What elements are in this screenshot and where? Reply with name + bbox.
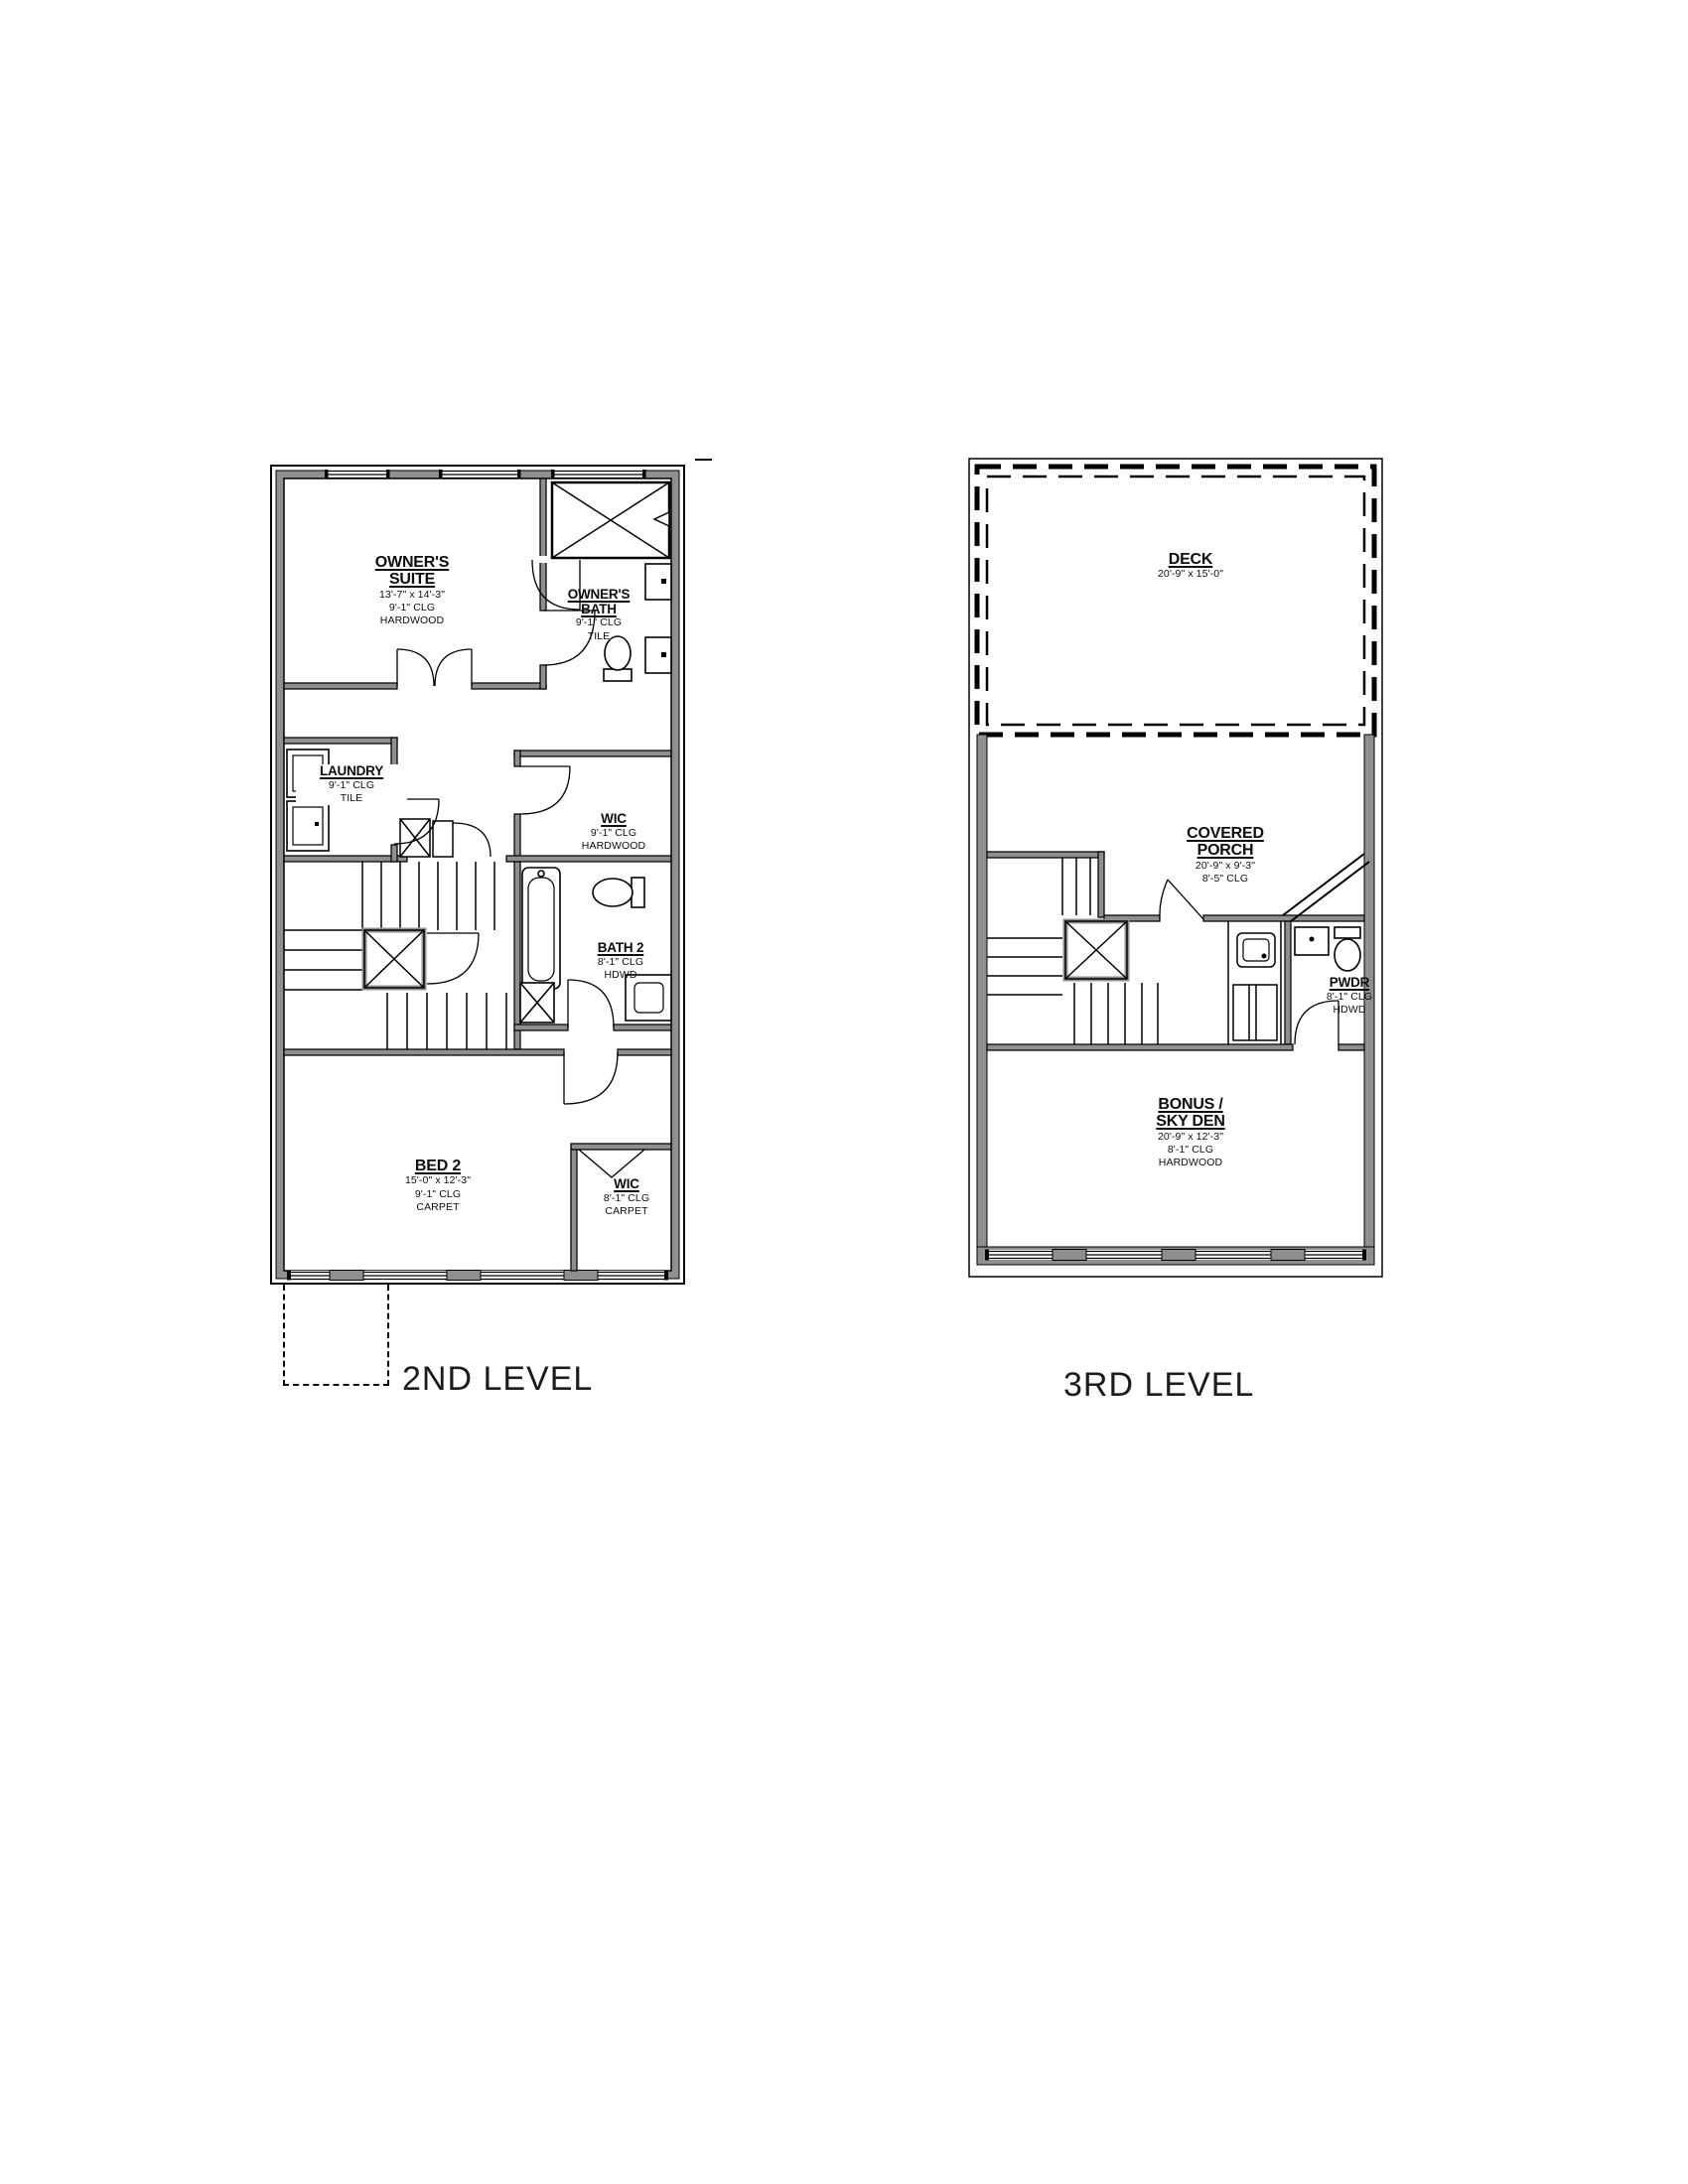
windows-bottom — [985, 1250, 1366, 1261]
label-2nd-level: 2ND LEVEL — [402, 1362, 593, 1396]
room-label-laundry: LAUNDRY 9'-1" CLG TILE — [296, 764, 407, 805]
room-name: OWNER'S SUITE — [362, 554, 462, 589]
room-ceiling: 9'-1" CLG — [296, 779, 407, 792]
room-label-pwdr: PWDR 8'-1" CLG HDWD — [1305, 976, 1394, 1017]
windows-top — [325, 470, 646, 478]
room-name: PORCH — [1166, 842, 1285, 859]
room-ceiling: 9'-1" CLG — [363, 1188, 512, 1201]
closet-chase-box — [400, 819, 453, 857]
stair-chase-box — [364, 930, 424, 988]
room-dims: 13'-7" x 14'-3" — [362, 589, 462, 602]
room-ceiling: 8'-5" CLG — [1166, 873, 1285, 886]
room-name: WIC — [572, 1177, 681, 1192]
room-label-covered-porch: COVERED PORCH 20'-9" x 9'-3" 8'-5" CLG — [1166, 825, 1285, 886]
room-dims: 15'-0" x 12'-3" — [363, 1174, 512, 1187]
room-floor: CARPET — [572, 1205, 681, 1218]
cutout-outline — [283, 1285, 389, 1386]
room-name: DECK — [1111, 551, 1270, 568]
room-label-wic-upper: WIC 9'-1" CLG HARDWOOD — [554, 812, 673, 853]
toilet-tank — [632, 878, 644, 907]
windows-bottom — [287, 1271, 668, 1281]
label-3rd-level: 3RD LEVEL — [1063, 1368, 1254, 1402]
shower — [552, 482, 669, 558]
room-label-bath-2: BATH 2 8'-1" CLG HDWD — [571, 941, 670, 982]
room-name: SKY DEN — [1111, 1113, 1270, 1130]
toilet-tank — [1335, 927, 1360, 938]
room-floor: HARDWOOD — [1111, 1157, 1270, 1169]
room-floor: TILE — [296, 792, 407, 805]
room-ceiling: 9'-1" CLG — [554, 616, 643, 629]
room-name: BED 2 — [363, 1158, 512, 1174]
vanity-cabinet — [645, 564, 671, 600]
room-name: OWNER'S BATH — [554, 588, 643, 616]
room-name: PWDR — [1305, 976, 1394, 991]
room-label-owners-suite: OWNER'S SUITE 13'-7" x 14'-3" 9'-1" CLG … — [362, 554, 462, 628]
room-ceiling: 8'-1" CLG — [572, 1192, 681, 1205]
room-name: WIC — [554, 812, 673, 827]
room-ceiling: 9'-1" CLG — [362, 602, 462, 614]
room-floor: HDWD — [1305, 1004, 1394, 1017]
reference-tick — [695, 459, 712, 461]
room-ceiling: 8'-1" CLG — [1111, 1144, 1270, 1157]
room-ceiling: 8'-1" CLG — [571, 956, 670, 969]
room-name: COVERED — [1166, 825, 1285, 842]
room-floor: HDWD — [571, 969, 670, 982]
room-dims: 20'-9" x 9'-3" — [1166, 860, 1285, 873]
floorplan-3rd-level: DECK 20'-9" x 15'-0" COVERED PORCH 20'-9… — [963, 447, 1390, 1286]
room-label-wic-lower: WIC 8'-1" CLG CARPET — [572, 1177, 681, 1218]
room-ceiling: 8'-1" CLG — [1305, 991, 1394, 1004]
room-label-bed-2: BED 2 15'-0" x 12'-3" 9'-1" CLG CARPET — [363, 1158, 512, 1215]
floorplan-sheet: OWNER'S SUITE 13'-7" x 14'-3" 9'-1" CLG … — [0, 0, 1688, 2184]
room-name: LAUNDRY — [296, 764, 407, 779]
toilet-bowl — [1335, 939, 1360, 971]
room-dims: 20'-9" x 12'-3" — [1111, 1131, 1270, 1144]
room-floor: HARDWOOD — [362, 614, 462, 627]
room-ceiling: 9'-1" CLG — [554, 827, 673, 840]
stair-chase-box — [1065, 921, 1127, 979]
room-floor: HARDWOOD — [554, 840, 673, 853]
room-label-deck: DECK 20'-9" x 15'-0" — [1111, 551, 1270, 582]
room-dims: 20'-9" x 15'-0" — [1111, 568, 1270, 581]
room-floor: CARPET — [363, 1201, 512, 1214]
toilet-bowl — [593, 879, 633, 906]
floorplan-2nd-level: OWNER'S SUITE 13'-7" x 14'-3" 9'-1" CLG … — [268, 457, 690, 1291]
room-floor: TILE — [554, 630, 643, 643]
room-label-owners-bath: OWNER'S BATH 9'-1" CLG TILE — [554, 588, 643, 643]
room-name: BATH 2 — [571, 941, 670, 956]
vanity-cabinet — [645, 637, 671, 673]
room-label-bonus-sky-den: BONUS / SKY DEN 20'-9" x 12'-3" 8'-1" CL… — [1111, 1096, 1270, 1170]
room-name: BONUS / — [1111, 1096, 1270, 1113]
